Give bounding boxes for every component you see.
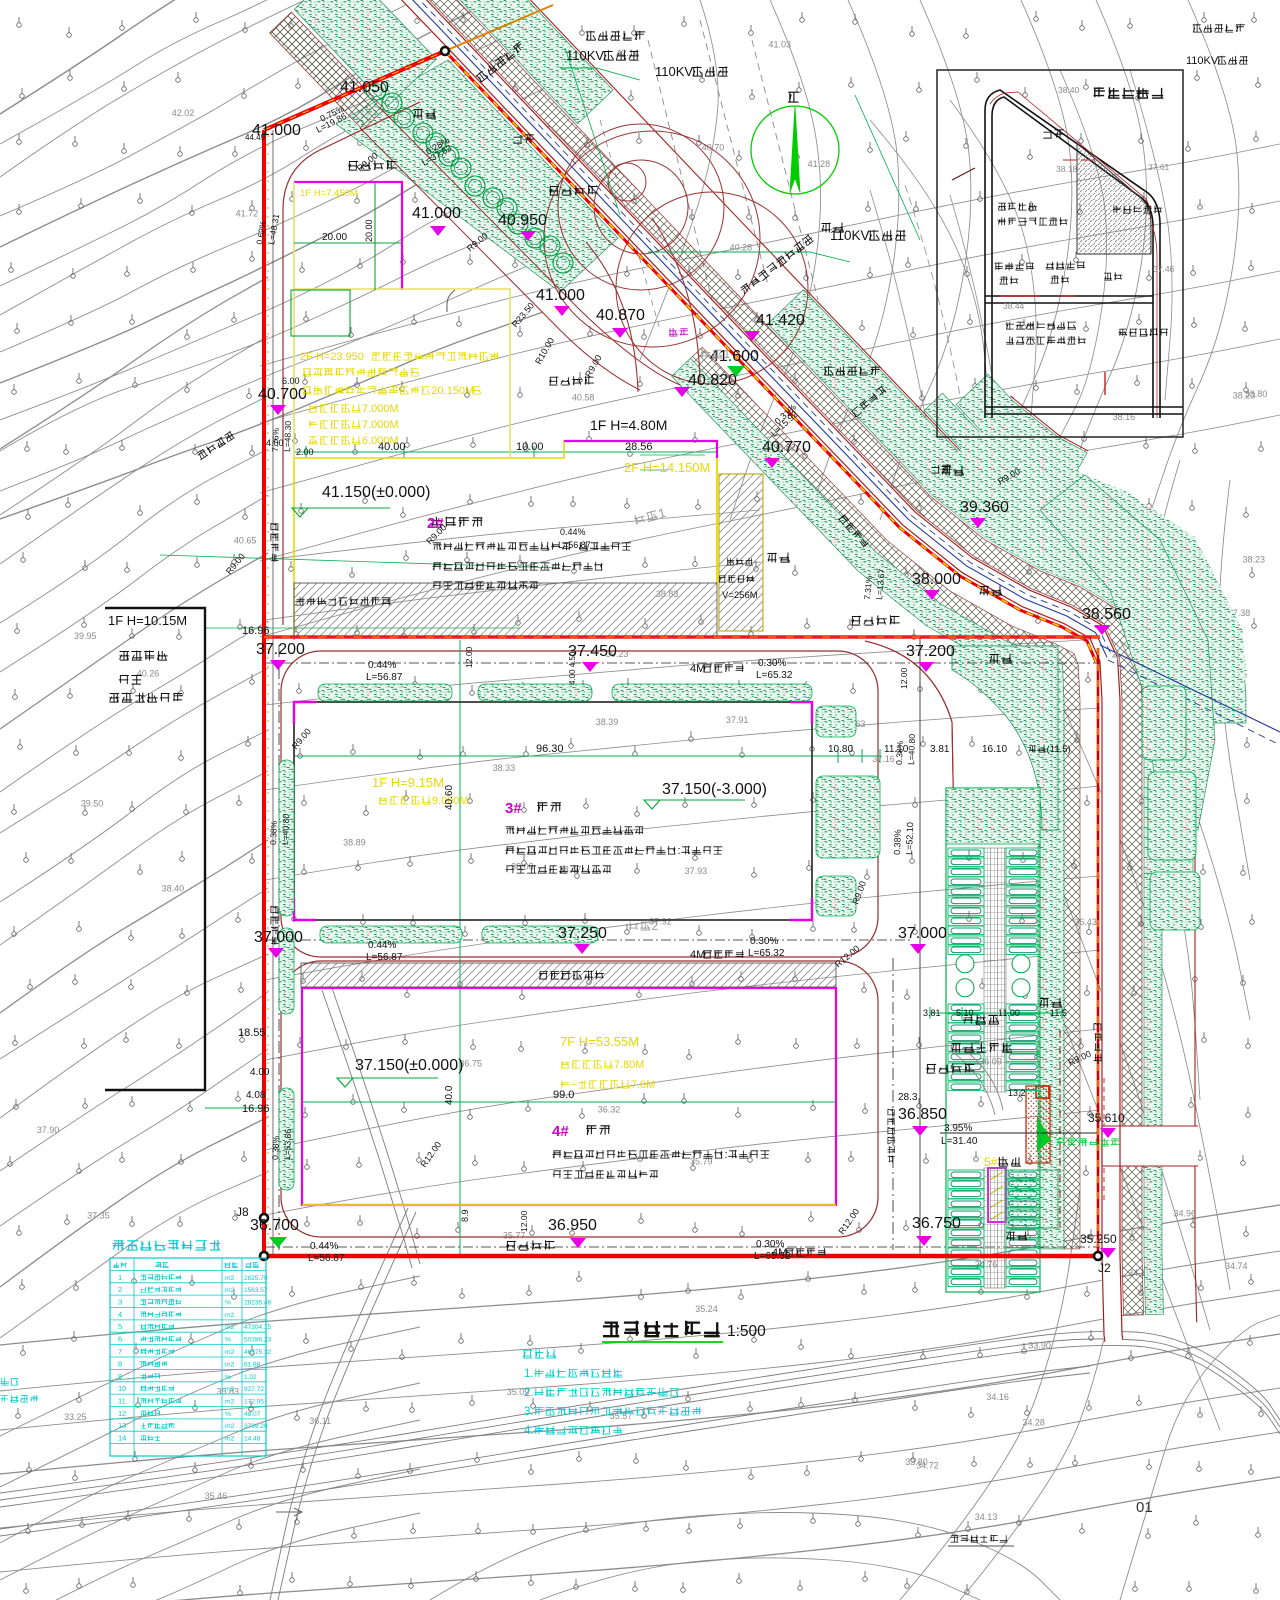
svg-text:40.58: 40.58 bbox=[572, 392, 595, 402]
svg-text:14: 14 bbox=[118, 1434, 126, 1443]
svg-text:2: 2 bbox=[118, 1285, 122, 1294]
svg-text:3799.20: 3799.20 bbox=[244, 1423, 268, 1430]
svg-text:L=65.32: L=65.32 bbox=[748, 948, 785, 959]
svg-text:8.9: 8.9 bbox=[460, 1209, 470, 1222]
svg-text:35.46: 35.46 bbox=[205, 1491, 228, 1501]
svg-text:40.26: 40.26 bbox=[137, 668, 160, 678]
svg-text:m2: m2 bbox=[225, 1399, 235, 1406]
svg-text:01: 01 bbox=[1136, 1499, 1153, 1516]
svg-text:40.60: 40.60 bbox=[444, 785, 455, 810]
svg-text:927.72: 927.72 bbox=[244, 1386, 264, 1393]
svg-text:40.700: 40.700 bbox=[258, 386, 307, 403]
svg-text:2F H=14.150M: 2F H=14.150M bbox=[624, 460, 710, 475]
svg-text:L=53.86: L=53.86 bbox=[282, 1129, 293, 1161]
svg-text:37.46: 37.46 bbox=[1153, 264, 1175, 274]
svg-text:38.40: 38.40 bbox=[1058, 85, 1080, 95]
svg-text:38.560: 38.560 bbox=[1082, 606, 1131, 623]
svg-text:33.90: 33.90 bbox=[1028, 1341, 1051, 1351]
svg-text:%: % bbox=[225, 1374, 231, 1381]
svg-text:J8: J8 bbox=[236, 1205, 249, 1219]
svg-text:4M: 4M bbox=[690, 949, 705, 961]
svg-text:6.00: 6.00 bbox=[282, 376, 300, 386]
svg-text:40.820: 40.820 bbox=[688, 372, 737, 389]
svg-text:38.44: 38.44 bbox=[1003, 301, 1025, 311]
svg-text:37.91: 37.91 bbox=[726, 715, 749, 725]
svg-text:3: 3 bbox=[118, 1298, 122, 1307]
svg-text:3.: 3. bbox=[524, 1406, 534, 1418]
svg-text:41.150(±0.000): 41.150(±0.000) bbox=[322, 484, 430, 501]
svg-text:172.05: 172.05 bbox=[244, 1399, 264, 1406]
svg-text:14.48: 14.48 bbox=[244, 1436, 261, 1443]
svg-text:18.55: 18.55 bbox=[238, 1027, 266, 1039]
svg-text:7.31%: 7.31% bbox=[862, 575, 874, 600]
svg-text:m2: m2 bbox=[225, 1361, 235, 1368]
svg-text:35.24: 35.24 bbox=[695, 1304, 718, 1314]
svg-text:m2: m2 bbox=[225, 1312, 235, 1319]
svg-text:1: 1 bbox=[118, 1273, 122, 1282]
svg-text:0.30%: 0.30% bbox=[756, 1239, 784, 1250]
svg-text:36.700: 36.700 bbox=[250, 1217, 299, 1234]
svg-text:41.050: 41.050 bbox=[340, 79, 389, 96]
svg-text:37.35: 37.35 bbox=[87, 1211, 110, 1221]
svg-text:m2: m2 bbox=[225, 1275, 235, 1282]
svg-text:50286.23: 50286.23 bbox=[244, 1337, 271, 1344]
svg-text:40.770: 40.770 bbox=[762, 439, 811, 456]
svg-text:48.07: 48.07 bbox=[244, 1411, 261, 1418]
svg-text:L=56.87: L=56.87 bbox=[558, 540, 591, 550]
svg-text:7.0M: 7.0M bbox=[631, 1079, 655, 1091]
svg-text:37.200: 37.200 bbox=[256, 641, 305, 658]
svg-text:1F H=9.15M: 1F H=9.15M bbox=[372, 775, 444, 790]
svg-text:1.02: 1.02 bbox=[244, 1374, 257, 1381]
svg-text:13: 13 bbox=[118, 1421, 126, 1430]
svg-text::: : bbox=[678, 845, 681, 857]
svg-text:38.23: 38.23 bbox=[1243, 554, 1266, 564]
svg-text:34.13: 34.13 bbox=[975, 1512, 998, 1522]
svg-text:1F H=10.15M: 1F H=10.15M bbox=[108, 613, 187, 628]
svg-text:%: % bbox=[225, 1411, 231, 1418]
svg-text:0.30%: 0.30% bbox=[750, 936, 778, 947]
svg-text:42.02: 42.02 bbox=[172, 108, 195, 118]
svg-text:4#: 4# bbox=[552, 1123, 569, 1140]
svg-text:20.150M: 20.150M bbox=[431, 385, 474, 397]
svg-text:110KV: 110KV bbox=[830, 228, 870, 243]
svg-text:38.39: 38.39 bbox=[596, 717, 619, 727]
svg-text:(11.5): (11.5) bbox=[1047, 744, 1071, 755]
svg-text:11.5: 11.5 bbox=[1050, 1008, 1067, 1018]
svg-text:m2: m2 bbox=[225, 1287, 235, 1294]
svg-text:5.10: 5.10 bbox=[956, 1008, 974, 1018]
svg-text:0.44%: 0.44% bbox=[368, 660, 396, 671]
svg-text:110KV: 110KV bbox=[1186, 55, 1219, 67]
svg-text:20.00: 20.00 bbox=[322, 232, 347, 243]
svg-text:5: 5 bbox=[118, 1322, 122, 1331]
svg-text:40.870: 40.870 bbox=[596, 307, 645, 324]
svg-text:0.44%: 0.44% bbox=[368, 940, 396, 951]
svg-text:38.40: 38.40 bbox=[162, 883, 185, 893]
svg-text:39.360: 39.360 bbox=[960, 499, 1009, 516]
svg-text:40.950: 40.950 bbox=[498, 212, 547, 229]
svg-text:37.150(-3.000): 37.150(-3.000) bbox=[662, 781, 767, 798]
svg-text:4.08: 4.08 bbox=[246, 1090, 266, 1101]
svg-text:9: 9 bbox=[118, 1372, 122, 1381]
svg-text:0.44%: 0.44% bbox=[310, 1241, 338, 1252]
svg-text:2: 2 bbox=[652, 919, 659, 933]
svg-text:36.950: 36.950 bbox=[548, 1217, 597, 1234]
svg-text:41.420: 41.420 bbox=[756, 312, 805, 329]
svg-text:4M: 4M bbox=[690, 663, 705, 675]
svg-text:33.25: 33.25 bbox=[64, 1412, 87, 1422]
svg-text:2F H=23.950: 2F H=23.950 bbox=[300, 351, 364, 363]
svg-text:L=56.87: L=56.87 bbox=[366, 952, 403, 963]
svg-text:40.0: 40.0 bbox=[444, 1085, 455, 1105]
svg-text:39.50: 39.50 bbox=[81, 798, 104, 808]
svg-text:7.000M: 7.000M bbox=[362, 419, 399, 431]
svg-text:11: 11 bbox=[118, 1397, 126, 1406]
svg-text:39.95: 39.95 bbox=[74, 631, 97, 641]
svg-text:V=256M: V=256M bbox=[722, 590, 758, 601]
svg-text:37.150(±0.000): 37.150(±0.000) bbox=[355, 1057, 463, 1074]
svg-text:12: 12 bbox=[118, 1409, 126, 1418]
svg-text:4.00: 4.00 bbox=[250, 1067, 270, 1078]
svg-text:4: 4 bbox=[118, 1310, 122, 1319]
svg-text:34.16: 34.16 bbox=[986, 1392, 1009, 1402]
svg-text:10: 10 bbox=[118, 1384, 126, 1393]
svg-text:L=40.80: L=40.80 bbox=[906, 734, 917, 766]
svg-text:%: % bbox=[225, 1337, 231, 1344]
svg-text:7F H=53.55M: 7F H=53.55M bbox=[560, 1034, 639, 1049]
svg-text:28.56: 28.56 bbox=[625, 441, 653, 453]
svg-text:2825.70: 2825.70 bbox=[244, 1275, 268, 1282]
svg-text:4: 4 bbox=[1112, 647, 1120, 664]
svg-text:6: 6 bbox=[118, 1335, 122, 1344]
svg-text:0.30%: 0.30% bbox=[758, 658, 786, 669]
svg-text:7: 7 bbox=[118, 1347, 122, 1356]
svg-text:36.850: 36.850 bbox=[898, 1106, 947, 1123]
svg-text:4.00 4.50: 4.00 4.50 bbox=[568, 651, 577, 685]
svg-text:7.80M: 7.80M bbox=[614, 1059, 645, 1071]
svg-text:4.: 4. bbox=[524, 1425, 534, 1437]
svg-text:13.2: 13.2 bbox=[1008, 1088, 1026, 1098]
svg-text:99.0: 99.0 bbox=[553, 1089, 574, 1101]
svg-text:1.: 1. bbox=[524, 1368, 534, 1380]
svg-text:L=56.87: L=56.87 bbox=[366, 672, 403, 683]
svg-text:0.38%: 0.38% bbox=[894, 740, 905, 765]
svg-text:L=48.30: L=48.30 bbox=[282, 421, 293, 453]
svg-text:36.32: 36.32 bbox=[598, 1104, 621, 1114]
svg-text:L=40.80: L=40.80 bbox=[280, 814, 291, 846]
svg-text:2.: 2. bbox=[524, 1387, 534, 1399]
svg-text:2.00: 2.00 bbox=[296, 447, 314, 457]
svg-text:0.44%: 0.44% bbox=[560, 527, 586, 537]
svg-text:28.3: 28.3 bbox=[898, 1092, 918, 1103]
svg-text:46375.32: 46375.32 bbox=[244, 1349, 271, 1356]
svg-text:37.93: 37.93 bbox=[685, 866, 708, 876]
svg-text:L=56.87: L=56.87 bbox=[308, 1253, 345, 1264]
svg-text:m2: m2 bbox=[225, 1349, 235, 1356]
svg-text:38.33: 38.33 bbox=[493, 763, 516, 773]
svg-text:12.00: 12.00 bbox=[519, 1210, 529, 1232]
svg-text:35.610: 35.610 bbox=[1088, 1111, 1125, 1125]
svg-text:0.38%: 0.38% bbox=[892, 829, 903, 855]
svg-text:10.80: 10.80 bbox=[828, 744, 853, 755]
svg-text:38.18: 38.18 bbox=[1056, 164, 1078, 174]
svg-text:0.38%: 0.38% bbox=[268, 820, 279, 845]
svg-text:61.98: 61.98 bbox=[244, 1361, 261, 1368]
svg-text:10.00: 10.00 bbox=[516, 441, 544, 453]
svg-text:34.28: 34.28 bbox=[1022, 1418, 1045, 1428]
svg-text:11.00: 11.00 bbox=[998, 1008, 1020, 1018]
svg-text:1F H=4.80M: 1F H=4.80M bbox=[590, 417, 667, 433]
svg-text:38.89: 38.89 bbox=[343, 837, 366, 847]
svg-text:35.250: 35.250 bbox=[1080, 1232, 1117, 1246]
svg-text:1: 1 bbox=[724, 347, 731, 361]
svg-text:38.000: 38.000 bbox=[912, 571, 961, 588]
svg-text:41.000: 41.000 bbox=[412, 205, 461, 222]
svg-text:42.14: 42.14 bbox=[616, 48, 639, 58]
svg-text:3#: 3# bbox=[505, 800, 522, 817]
svg-text:33.80: 33.80 bbox=[905, 1457, 928, 1467]
svg-text:16.96: 16.96 bbox=[242, 1103, 270, 1115]
svg-text:34.74: 34.74 bbox=[1225, 1261, 1248, 1271]
svg-text:34.96: 34.96 bbox=[1174, 1209, 1197, 1219]
svg-text:3.81: 3.81 bbox=[930, 744, 950, 755]
svg-text:41.72: 41.72 bbox=[236, 209, 259, 219]
svg-text:m2: m2 bbox=[225, 1436, 235, 1443]
svg-text:20.00: 20.00 bbox=[364, 219, 374, 242]
svg-text:8: 8 bbox=[118, 1359, 122, 1368]
svg-text:7.000M: 7.000M bbox=[362, 403, 399, 415]
svg-text:37.200: 37.200 bbox=[906, 643, 955, 660]
svg-text:44.49: 44.49 bbox=[245, 133, 266, 142]
svg-text:16.96: 16.96 bbox=[242, 625, 270, 637]
svg-text:L=65.32: L=65.32 bbox=[756, 670, 793, 681]
svg-text:0.38%: 0.38% bbox=[270, 1135, 281, 1160]
svg-text:96.30: 96.30 bbox=[536, 743, 564, 755]
svg-text:5#: 5# bbox=[984, 1155, 998, 1169]
svg-text:1:500: 1:500 bbox=[727, 1323, 766, 1340]
svg-text:36.750: 36.750 bbox=[912, 1215, 961, 1232]
svg-text:J2: J2 bbox=[1098, 1261, 1111, 1275]
svg-text:3.95%: 3.95% bbox=[944, 1123, 972, 1134]
svg-text:38.08: 38.08 bbox=[511, 862, 534, 872]
svg-text:m2: m2 bbox=[225, 1324, 235, 1331]
svg-text:37.250: 37.250 bbox=[558, 925, 607, 942]
svg-text:37.90: 37.90 bbox=[37, 1125, 60, 1135]
svg-text:38.23: 38.23 bbox=[1233, 391, 1256, 401]
svg-text:12.00: 12.00 bbox=[899, 667, 909, 689]
svg-text:1F H=7.450M: 1F H=7.450M bbox=[300, 188, 358, 199]
svg-text:%: % bbox=[225, 1300, 231, 1307]
svg-text:m2: m2 bbox=[225, 1386, 235, 1393]
svg-text:41.03: 41.03 bbox=[769, 39, 792, 49]
svg-text:37.61: 37.61 bbox=[1148, 162, 1170, 172]
svg-text:110KV: 110KV bbox=[655, 64, 693, 79]
svg-text:L=52.10: L=52.10 bbox=[904, 822, 915, 855]
svg-text:7.76%: 7.76% bbox=[270, 427, 281, 452]
svg-text:12.00: 12.00 bbox=[464, 646, 474, 668]
svg-text:40.00: 40.00 bbox=[378, 441, 406, 453]
svg-text:1563.57: 1563.57 bbox=[244, 1287, 268, 1294]
svg-text:L=31.40: L=31.40 bbox=[941, 1136, 978, 1147]
svg-text:40.70: 40.70 bbox=[702, 142, 725, 152]
svg-text:L=65.32: L=65.32 bbox=[754, 1251, 791, 1262]
svg-text:36.11: 36.11 bbox=[309, 1416, 331, 1426]
svg-text:16.10: 16.10 bbox=[982, 744, 1007, 755]
svg-text:110KV: 110KV bbox=[566, 48, 604, 63]
svg-text:37.000: 37.000 bbox=[898, 925, 947, 942]
svg-text:41.28: 41.28 bbox=[808, 159, 831, 169]
svg-text:m2: m2 bbox=[225, 1423, 235, 1430]
svg-text:40.65: 40.65 bbox=[234, 536, 257, 546]
svg-text:41.000: 41.000 bbox=[536, 287, 585, 304]
svg-text:40.28: 40.28 bbox=[730, 243, 753, 253]
svg-text:3.81: 3.81 bbox=[923, 1008, 941, 1018]
svg-text:28235.48: 28235.48 bbox=[244, 1300, 271, 1307]
svg-text:47304.15: 47304.15 bbox=[244, 1324, 271, 1331]
svg-text::: : bbox=[725, 1149, 728, 1161]
